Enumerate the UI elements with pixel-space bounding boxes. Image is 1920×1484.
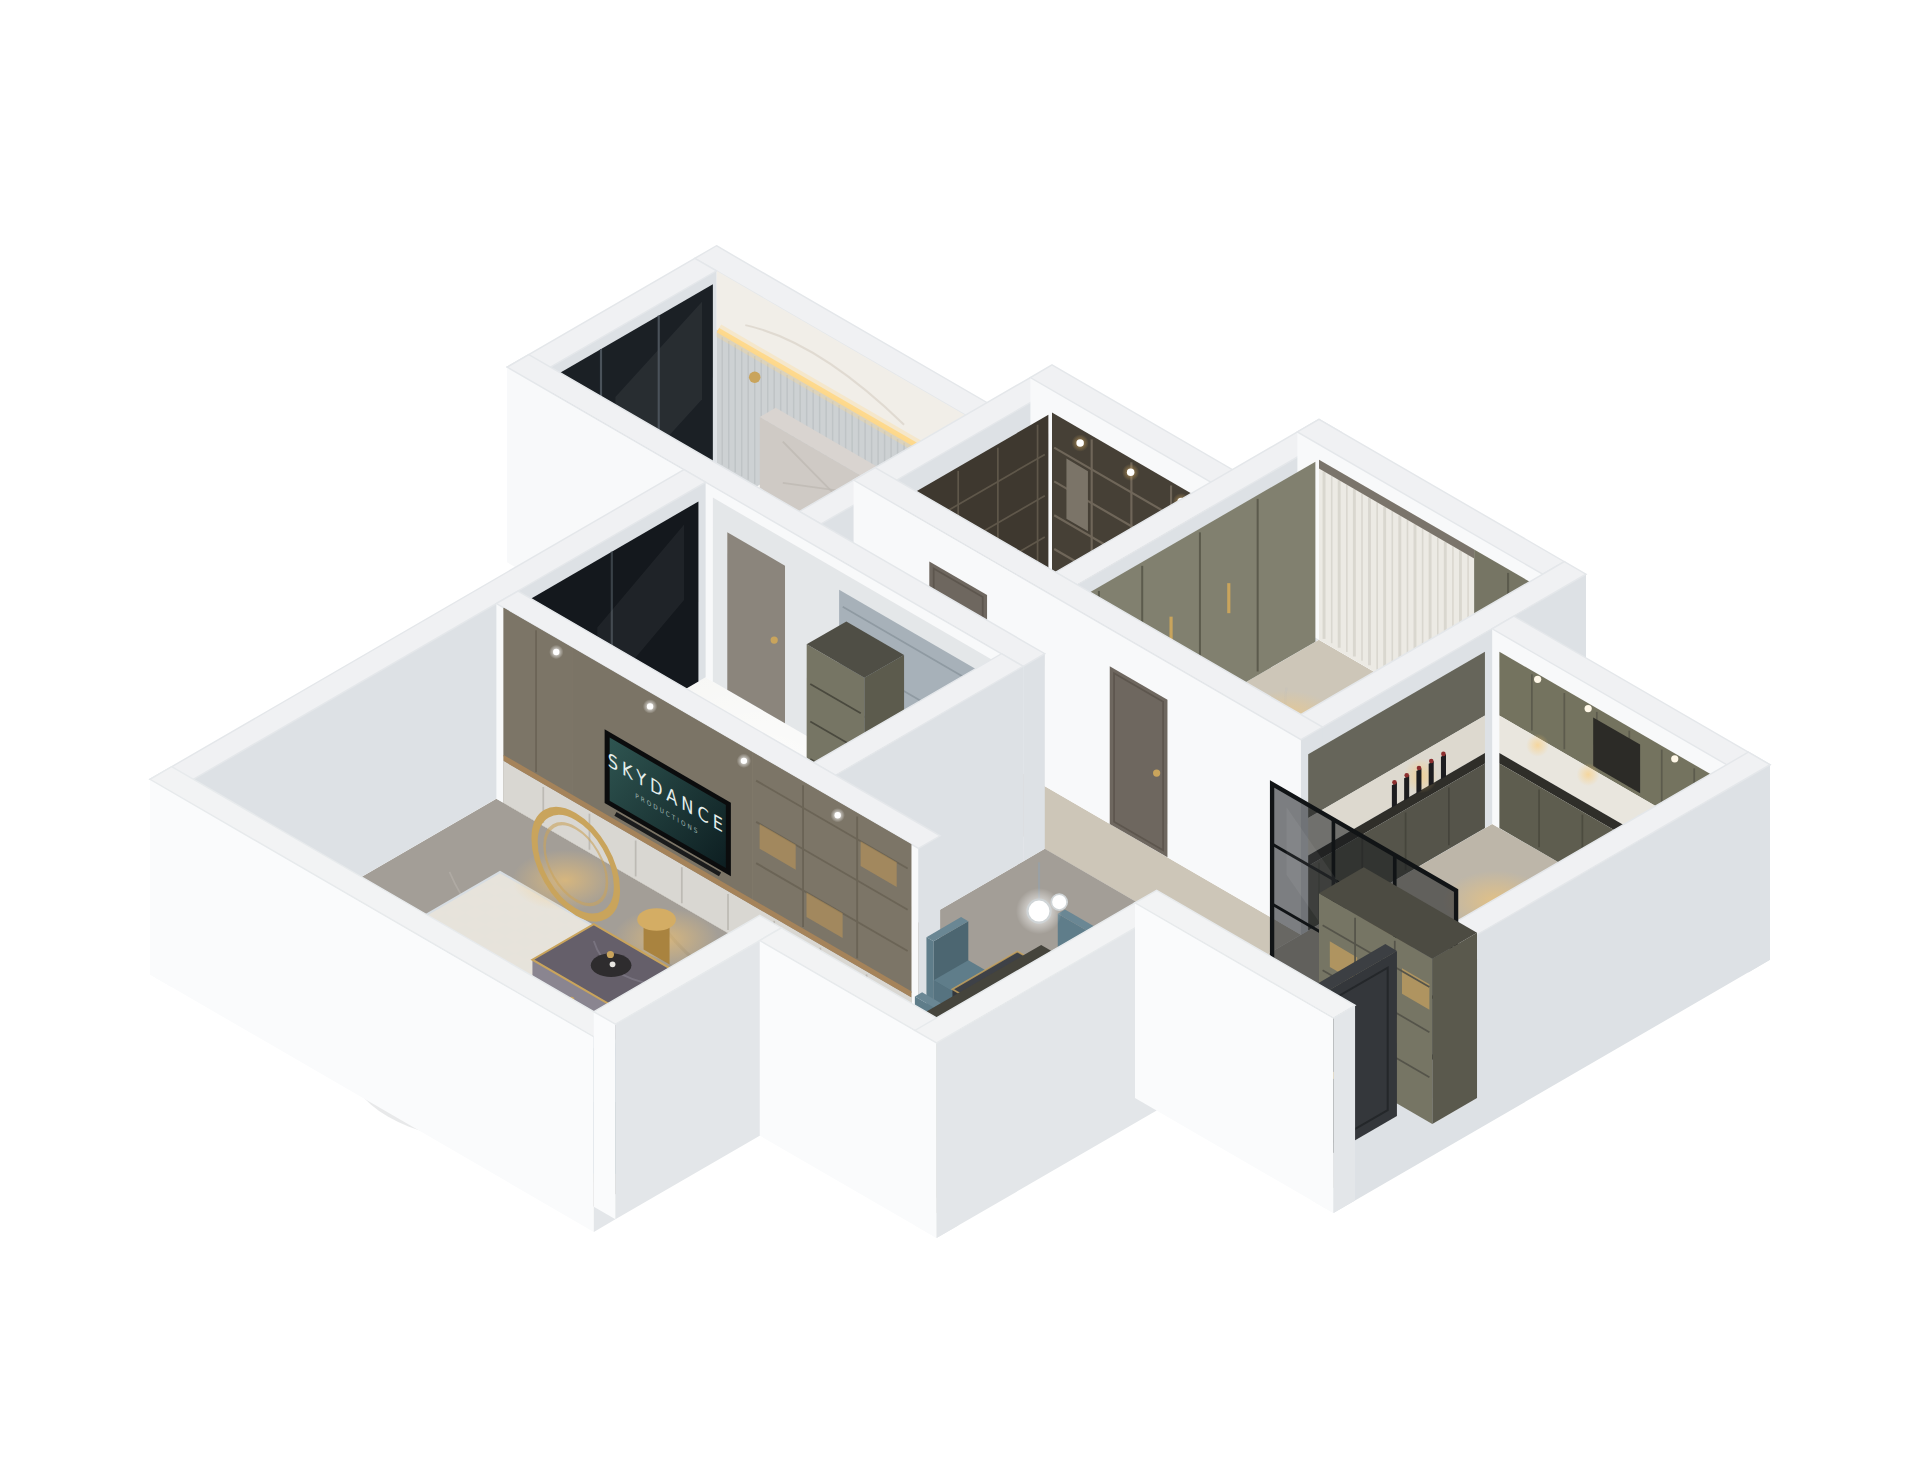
apartment-3d-render: SKYDANCE PRODUCTIONS [0, 0, 1920, 1484]
apartment-render-stage: SKYDANCE PRODUCTIONS [0, 0, 1920, 1484]
